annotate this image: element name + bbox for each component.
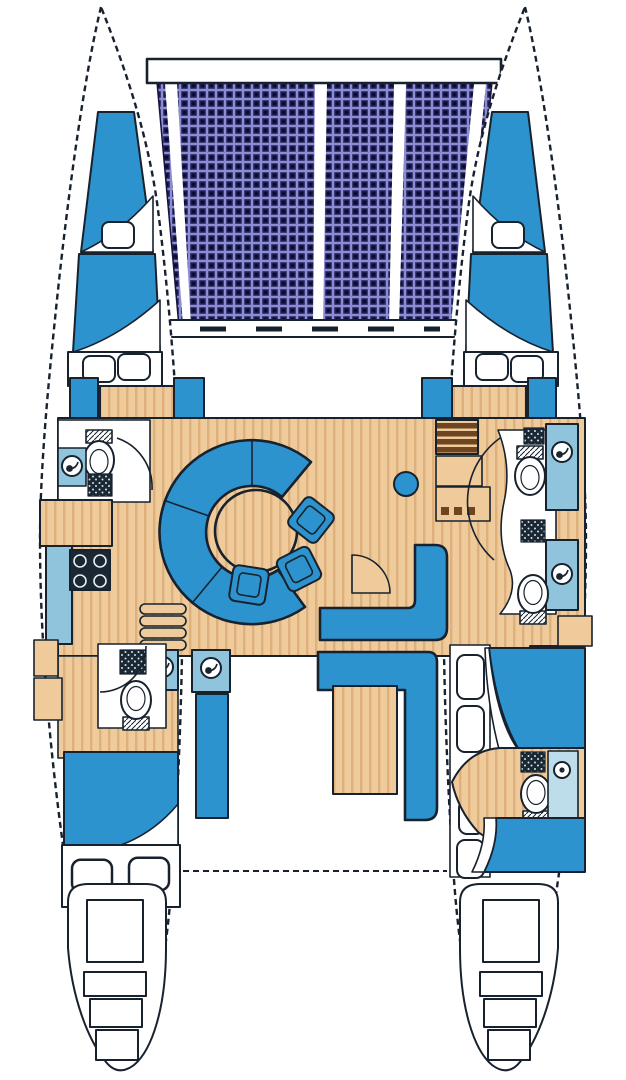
cabinet <box>558 616 592 646</box>
cockpit-side-seat <box>196 694 228 818</box>
side-locker <box>34 678 62 720</box>
step <box>437 423 477 429</box>
toilet <box>121 681 151 730</box>
port-stern-platform <box>68 884 166 1070</box>
starboard-aft-berth-foot <box>484 818 585 872</box>
salon-chair <box>228 564 269 605</box>
starboard-stern-platform <box>460 884 558 1070</box>
step <box>437 447 477 453</box>
side-locker <box>34 640 58 676</box>
toilet <box>521 775 551 824</box>
sink <box>62 456 82 476</box>
galley-counter <box>46 546 72 644</box>
forward-crossbeam <box>147 59 501 83</box>
trampoline-area <box>147 59 501 337</box>
nav-cabinet <box>436 487 490 521</box>
toilet <box>515 446 545 495</box>
floorplan-stage: Catamaran sailing yacht — interior layou… <box>0 0 626 1080</box>
sink <box>552 442 572 462</box>
sink-cabinet <box>546 424 578 510</box>
shower-grate <box>88 474 112 496</box>
galley-counter <box>40 500 112 546</box>
starboard-aft-section <box>450 645 585 878</box>
step <box>437 439 477 445</box>
catamaran-floorplan <box>0 0 626 1080</box>
cockpit-table <box>333 686 397 794</box>
sink <box>552 564 572 584</box>
shower-grate <box>521 752 545 772</box>
nav-cabinet <box>436 456 482 486</box>
shower-grate <box>120 650 146 674</box>
drawer-knob <box>454 507 462 515</box>
shower-grate <box>521 520 545 542</box>
salon-stool <box>394 472 418 496</box>
pillow <box>457 655 484 699</box>
stove <box>70 550 110 590</box>
drawer-knob <box>441 507 449 515</box>
sink <box>201 658 221 678</box>
faucet-dot <box>559 767 564 772</box>
shower-grate <box>524 428 544 444</box>
toilet <box>84 430 114 479</box>
toilet <box>518 575 548 624</box>
step <box>437 431 477 437</box>
pillow <box>457 706 484 752</box>
